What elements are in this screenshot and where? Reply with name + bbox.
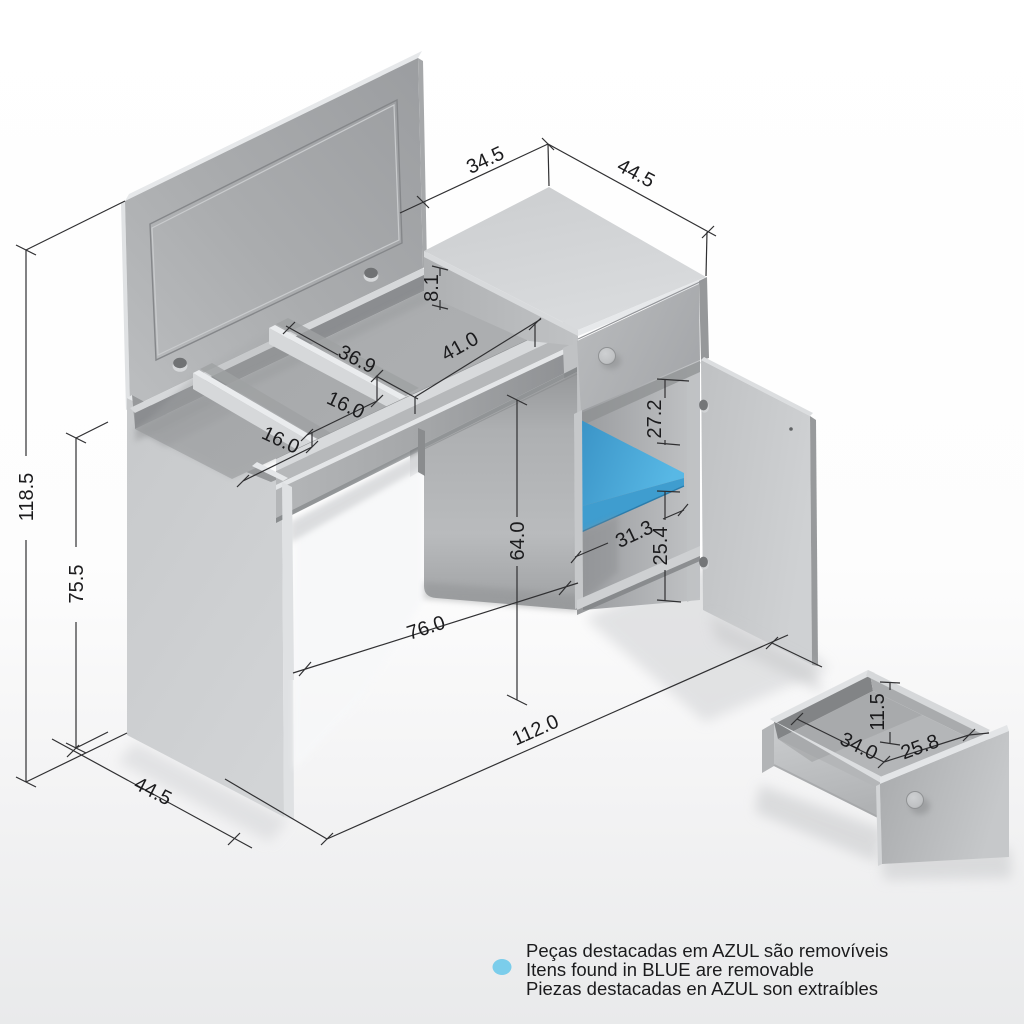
svg-text:8.1: 8.1: [421, 274, 443, 302]
svg-text:27.2: 27.2: [644, 400, 666, 439]
svg-text:25.4: 25.4: [650, 527, 672, 566]
svg-text:Peças destacadas em AZUL são r: Peças destacadas em AZUL são removíveis: [526, 940, 888, 961]
svg-text:Itens found in BLUE are remova: Itens found in BLUE are removable: [526, 959, 814, 980]
svg-text:75.5: 75.5: [66, 565, 88, 604]
svg-text:118.5: 118.5: [16, 473, 38, 522]
svg-text:11.5: 11.5: [867, 693, 889, 730]
svg-text:Piezas destacadas en AZUL son: Piezas destacadas en AZUL son extraíbles: [526, 978, 878, 999]
svg-text:64.0: 64.0: [507, 522, 529, 561]
